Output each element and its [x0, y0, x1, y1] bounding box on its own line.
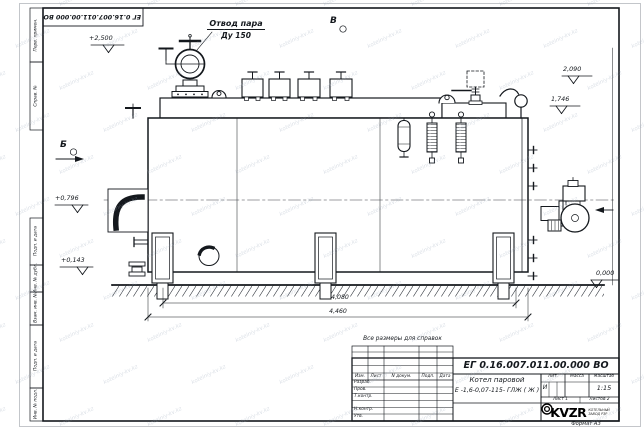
row-prov: Пров.: [354, 388, 367, 393]
col-podp: Подп.: [419, 375, 437, 380]
elevation-0796: +0,796: [55, 195, 79, 202]
elevation-1746: 1,746: [551, 96, 569, 103]
frame-field-perv-primen: Перв. примен.: [34, 19, 39, 52]
boiler-body: [104, 32, 616, 299]
title-block-doc-number: ЕГ 0.16.007.011.00.000 ВО: [453, 358, 619, 374]
frame-field-podp-data-2: Подп. и дата: [34, 341, 39, 371]
mass-label: Масса: [565, 375, 589, 380]
elevation-0000: 0,000: [596, 270, 614, 277]
manufacturer-logo: KVZR КОТЕЛЬНЫЙ ЗАВОД РЗР: [541, 403, 619, 421]
manhole: [199, 247, 219, 266]
kvzr-logo-subtext: КОТЕЛЬНЫЙ ЗАВОД РЗР: [588, 408, 609, 416]
shoulder-valve: [126, 104, 140, 118]
row-tkontr: Т.контр.: [354, 395, 373, 400]
reference-note: Все размеры для справок: [352, 336, 453, 342]
rear-flange-bolts: [528, 147, 537, 280]
top-stamp-doc-number: ЕГ 0.16.007.011.00.000 ВО: [45, 10, 141, 24]
row-nkontr: Н.контр.: [354, 408, 373, 413]
elevation-0143: +0,143: [61, 257, 85, 264]
dim-4080: 4,080: [320, 295, 360, 302]
product-name: Котел паровой: [453, 377, 541, 385]
kvzr-sub2: ЗАВОД РЗР: [588, 412, 609, 416]
col-data: Дата: [437, 375, 453, 380]
kvzr-logo-icon: [541, 403, 553, 415]
product-designation: Е -1,6-0,07-115- ГЛЖ ( Ж ): [453, 388, 541, 395]
steam-outlet-valve: [160, 32, 227, 98]
smoke-elbow-box: [108, 189, 148, 276]
lit-label: Лит.: [541, 375, 565, 380]
frame-field-inv-dubl: Инв. № дубл.: [34, 263, 39, 293]
col-izm: Изм.: [352, 375, 368, 380]
frame-field-vzam-inv: Взам. инв. №: [34, 293, 39, 323]
scale-label: Масштаб: [589, 375, 619, 380]
frame-field-sprav-no: Справ. №: [34, 85, 39, 106]
frame-field-inv-podl: Инв. № подл.: [34, 389, 39, 419]
view-marker-b: Б: [60, 141, 67, 151]
elevation-2090: 2,090: [563, 66, 581, 73]
elevation-2500: +2,500: [89, 35, 113, 42]
kvzr-logo-text: KVZR: [550, 405, 586, 420]
burner: [541, 178, 589, 233]
format-label: Формат А3: [556, 422, 616, 428]
col-list: Лист: [368, 375, 384, 380]
view-marker-v: В: [330, 17, 337, 27]
sheet-number: Лист 1: [541, 398, 580, 403]
drawing-sheet: ЕГ 0.16.007.011.00.000 ВО Перв. примен. …: [0, 0, 644, 430]
frame-field-podp-data-1: Подп. и дата: [34, 226, 39, 256]
row-razrab: Разраб.: [354, 381, 371, 386]
dim-4460: 4,460: [318, 309, 358, 316]
row-utv: Утв.: [354, 415, 363, 420]
sheets-total: Листов 2: [580, 398, 619, 403]
steam-outlet-dn: Ду 150: [207, 32, 265, 40]
steam-drum-top: [160, 98, 442, 118]
safety-valve-boxes: [242, 72, 352, 101]
lit-value: И: [541, 385, 549, 392]
steam-outlet-label: Отвод пара: [207, 20, 265, 30]
scale-value: 1:15: [589, 385, 619, 392]
col-doc: N докум.: [384, 375, 419, 380]
